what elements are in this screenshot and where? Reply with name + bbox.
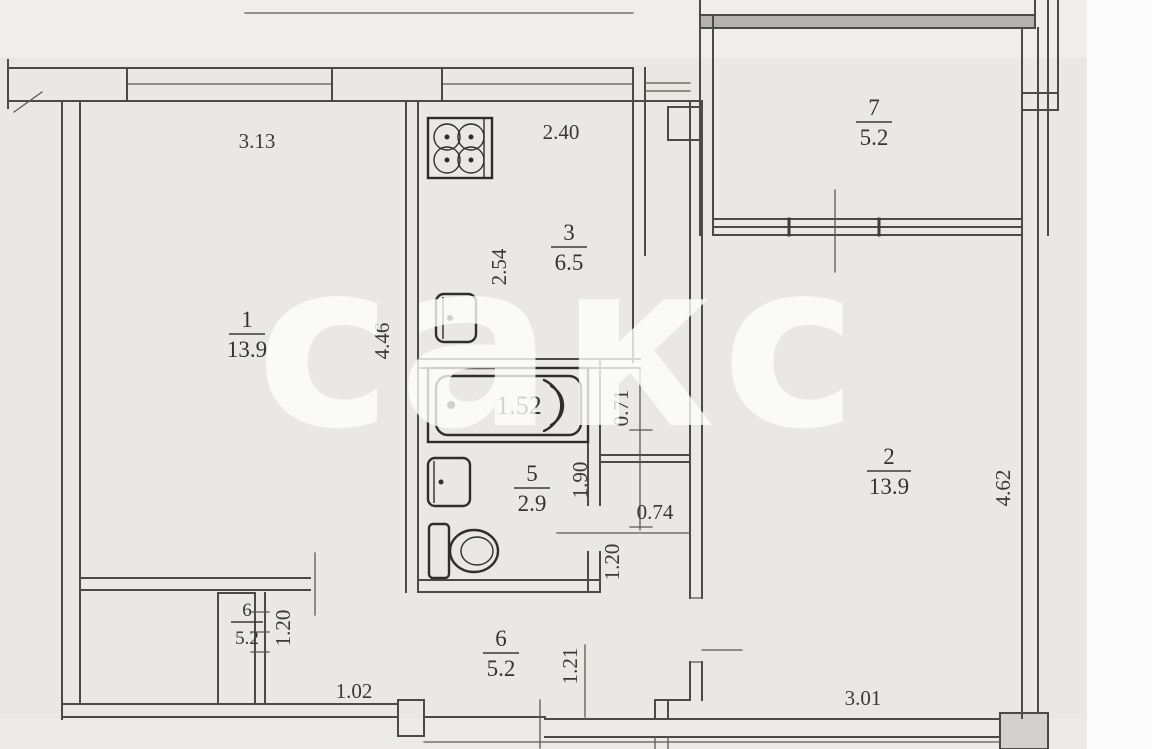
balcony-number: 7	[868, 95, 880, 120]
watermark-text: сакс	[256, 213, 864, 480]
room2-area: 13.9	[869, 474, 909, 499]
dim-entry-width: 1.02	[336, 679, 373, 703]
dim-closet-width: 1.20	[271, 610, 295, 647]
hallway-area: 5.2	[487, 656, 516, 681]
bathroom-area: 2.9	[518, 491, 547, 516]
room2-number: 2	[883, 444, 895, 469]
balcony-area: 5.2	[860, 125, 889, 150]
dim-room2-depth: 4.62	[991, 470, 1015, 507]
closet-area: 5.2	[235, 628, 259, 649]
dim-passage-width: 0.74	[637, 500, 674, 524]
hallway-number: 6	[495, 626, 507, 651]
floor-plan-scan: 3.13 2.40 1.52 0.74 1.02 3.01 4.46 2.54 …	[0, 0, 1152, 749]
dim-room1-width: 3.13	[239, 129, 276, 153]
dim-room2-width: 3.01	[845, 686, 882, 710]
room1-number: 1	[241, 307, 253, 332]
dim-kitchen-width: 2.40	[543, 120, 580, 144]
dim-bath-door: 1.20	[600, 544, 624, 581]
closet-number: 6	[242, 600, 252, 621]
floor-plan-svg: 3.13 2.40 1.52 0.74 1.02 3.01 4.46 2.54 …	[0, 0, 1152, 749]
scan-margin	[1087, 0, 1152, 749]
dim-hall-depth: 1.21	[558, 648, 582, 685]
